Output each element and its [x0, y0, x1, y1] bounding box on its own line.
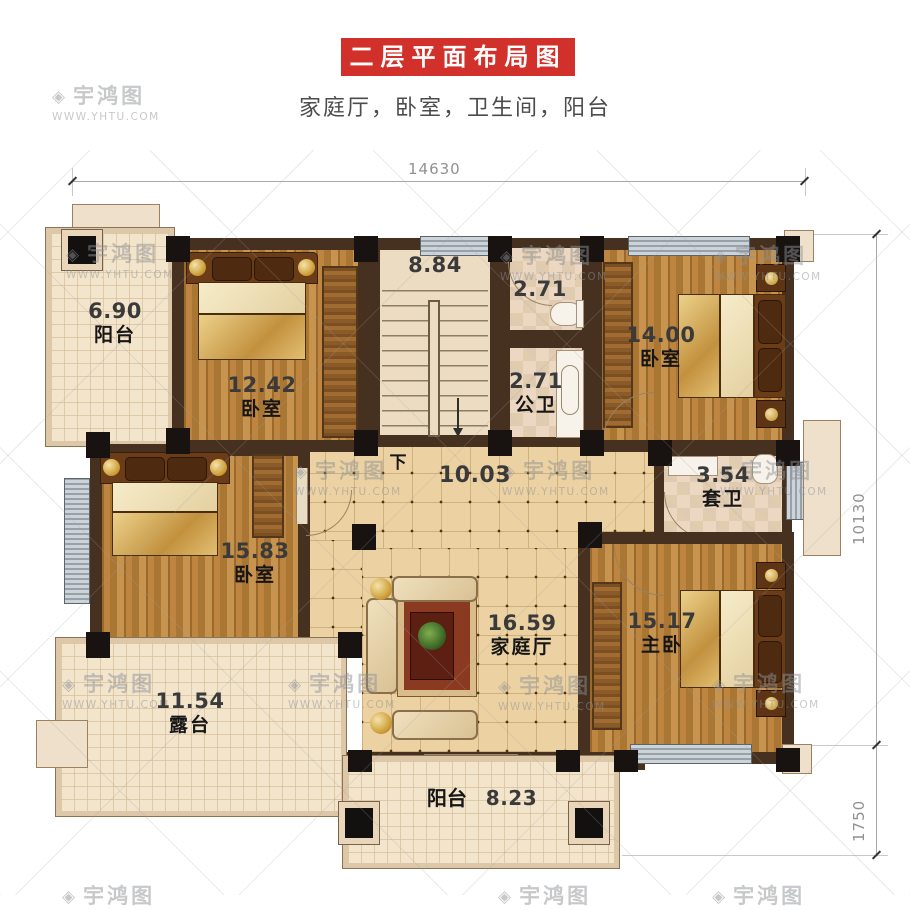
- column: [776, 440, 800, 466]
- watermark-brand: 宇鸿图: [733, 884, 805, 908]
- column: [776, 236, 800, 262]
- dim-right-height: 10130: [850, 445, 868, 545]
- watermark: ◈宇鸿图: [712, 880, 805, 910]
- room-area: 15.17: [612, 608, 712, 634]
- balcony-tl-label: 6.90 阳台: [60, 298, 170, 348]
- column: [580, 430, 604, 456]
- column: [580, 236, 604, 262]
- page-subtitle: 家庭厅，卧室，卫生间，阳台: [0, 90, 910, 122]
- room-area: 2.71: [500, 276, 580, 302]
- room-area: 3.54: [678, 462, 768, 488]
- column: [648, 440, 672, 466]
- room-name: 卧室: [202, 398, 322, 422]
- floor-lamp: [370, 712, 392, 734]
- pillow: [758, 348, 782, 392]
- column: [352, 524, 376, 550]
- column: [348, 750, 372, 772]
- pillow: [254, 257, 294, 281]
- room-name: 家庭厅: [462, 636, 582, 660]
- floorplan-page: { "header": { "title": "二层平面布局图", "subti…: [0, 0, 910, 895]
- pillow: [758, 595, 782, 637]
- column: [338, 632, 362, 658]
- column: [354, 430, 378, 456]
- family-hall-label: 16.59 家庭厅: [462, 610, 582, 660]
- column: [86, 432, 110, 458]
- stairs-label: 8.84: [395, 252, 475, 278]
- hallway-label: 10.03: [420, 462, 530, 490]
- room-area: 16.59: [462, 610, 582, 636]
- bedroom-tl-label: 12.42 卧室: [202, 372, 322, 422]
- window: [64, 478, 90, 604]
- balcony-tl-column: [62, 230, 102, 270]
- wardrobe: [252, 454, 284, 538]
- room-area: 6.90: [60, 298, 170, 324]
- pillow: [758, 641, 782, 683]
- window: [628, 236, 750, 256]
- bath-top-label: 2.71: [500, 276, 580, 302]
- knob: [765, 697, 778, 710]
- column: [578, 522, 602, 548]
- bedside-table: [756, 562, 786, 589]
- column: [614, 750, 638, 772]
- bedside-table: [756, 690, 786, 717]
- knob: [765, 408, 778, 421]
- balcony-column: [339, 802, 379, 844]
- master-bedroom-label: 15.17 主卧: [612, 608, 712, 658]
- bedside-table: [756, 264, 786, 292]
- terrace-pier: [36, 720, 88, 768]
- window: [786, 462, 804, 520]
- ext-line: [805, 168, 806, 196]
- room-area: 8.23: [486, 786, 537, 810]
- stairs-down-arrow: [457, 398, 459, 434]
- plant: [418, 622, 446, 650]
- bedroom-tr-label: 14.00 卧室: [611, 322, 711, 372]
- dim-right-balcony: 1750: [850, 758, 868, 842]
- bedroom-left-label: 15.83 卧室: [200, 538, 310, 588]
- room-area: 8.84: [395, 252, 475, 278]
- room-area: 15.83: [200, 538, 310, 564]
- sofa: [366, 598, 398, 694]
- column: [86, 632, 110, 658]
- ensuite-label: 3.54 套卫: [678, 462, 768, 512]
- ext-line: [622, 855, 888, 856]
- bed: [186, 252, 318, 360]
- window: [630, 744, 752, 764]
- room-area: 11.54: [135, 688, 245, 714]
- floor-lamp: [370, 578, 392, 600]
- room-name: 公卫: [495, 394, 577, 418]
- page-title-banner: 二层平面布局图: [341, 38, 575, 76]
- watermark-brand: 宇鸿图: [83, 884, 155, 908]
- pillow: [212, 257, 252, 281]
- room-area: 12.42: [202, 372, 322, 398]
- bed-sheet: [198, 282, 306, 314]
- east-bay: [803, 420, 841, 556]
- toilet-tank: [576, 300, 584, 328]
- bath-public-label: 2.71 公卫: [495, 368, 577, 418]
- bed-sheet: [720, 294, 754, 398]
- room-name: 主卧: [612, 634, 712, 658]
- dim-top-width: 14630: [408, 160, 461, 178]
- room-area: 10.03: [420, 462, 530, 490]
- room-area: 14.00: [611, 322, 711, 348]
- column: [166, 236, 190, 262]
- room-name: 卧室: [611, 348, 711, 372]
- column: [488, 236, 512, 262]
- column: [166, 428, 190, 454]
- column: [776, 748, 800, 772]
- bedside-table: [756, 400, 786, 428]
- dim-line-right: [876, 234, 877, 855]
- pillow: [125, 457, 165, 481]
- bed-blanket: [198, 314, 306, 360]
- knob: [765, 569, 778, 582]
- column: [354, 236, 378, 262]
- room-name: 露台: [135, 714, 245, 738]
- wardrobe: [322, 266, 358, 438]
- knob: [765, 272, 778, 285]
- pillow: [167, 457, 207, 481]
- bedside-lamp: [103, 459, 120, 476]
- room-area: 2.71: [495, 368, 577, 394]
- bedside-lamp: [189, 259, 206, 276]
- dim-line-top: [72, 181, 805, 182]
- pillow: [758, 300, 782, 344]
- room-name: 阳台: [427, 786, 467, 810]
- bedside-lamp: [210, 459, 227, 476]
- column: [556, 750, 580, 772]
- room-name: 套卫: [678, 488, 768, 512]
- terrace-label: 11.54 露台: [135, 688, 245, 738]
- sofa: [392, 576, 478, 602]
- yhtu-logo-icon: ◈: [498, 887, 514, 907]
- watermark-brand: 宇鸿图: [519, 884, 591, 908]
- balcony-column: [569, 802, 609, 844]
- sofa: [392, 710, 478, 740]
- column: [488, 430, 512, 456]
- bedside-lamp: [298, 259, 315, 276]
- watermark: ◈宇鸿图: [62, 880, 155, 910]
- stairs-down-label: 下: [386, 448, 410, 473]
- stair-rail: [428, 300, 440, 437]
- bed-sheet: [112, 482, 218, 512]
- balcony-bottom-label: 阳台 8.23: [397, 782, 567, 811]
- yhtu-logo-icon: ◈: [62, 887, 78, 907]
- room-name: 阳台: [60, 324, 170, 348]
- room-name: 卧室: [200, 564, 310, 588]
- yhtu-logo-icon: ◈: [712, 887, 728, 907]
- watermark: ◈宇鸿图: [498, 880, 591, 910]
- bed-sheet: [720, 590, 754, 688]
